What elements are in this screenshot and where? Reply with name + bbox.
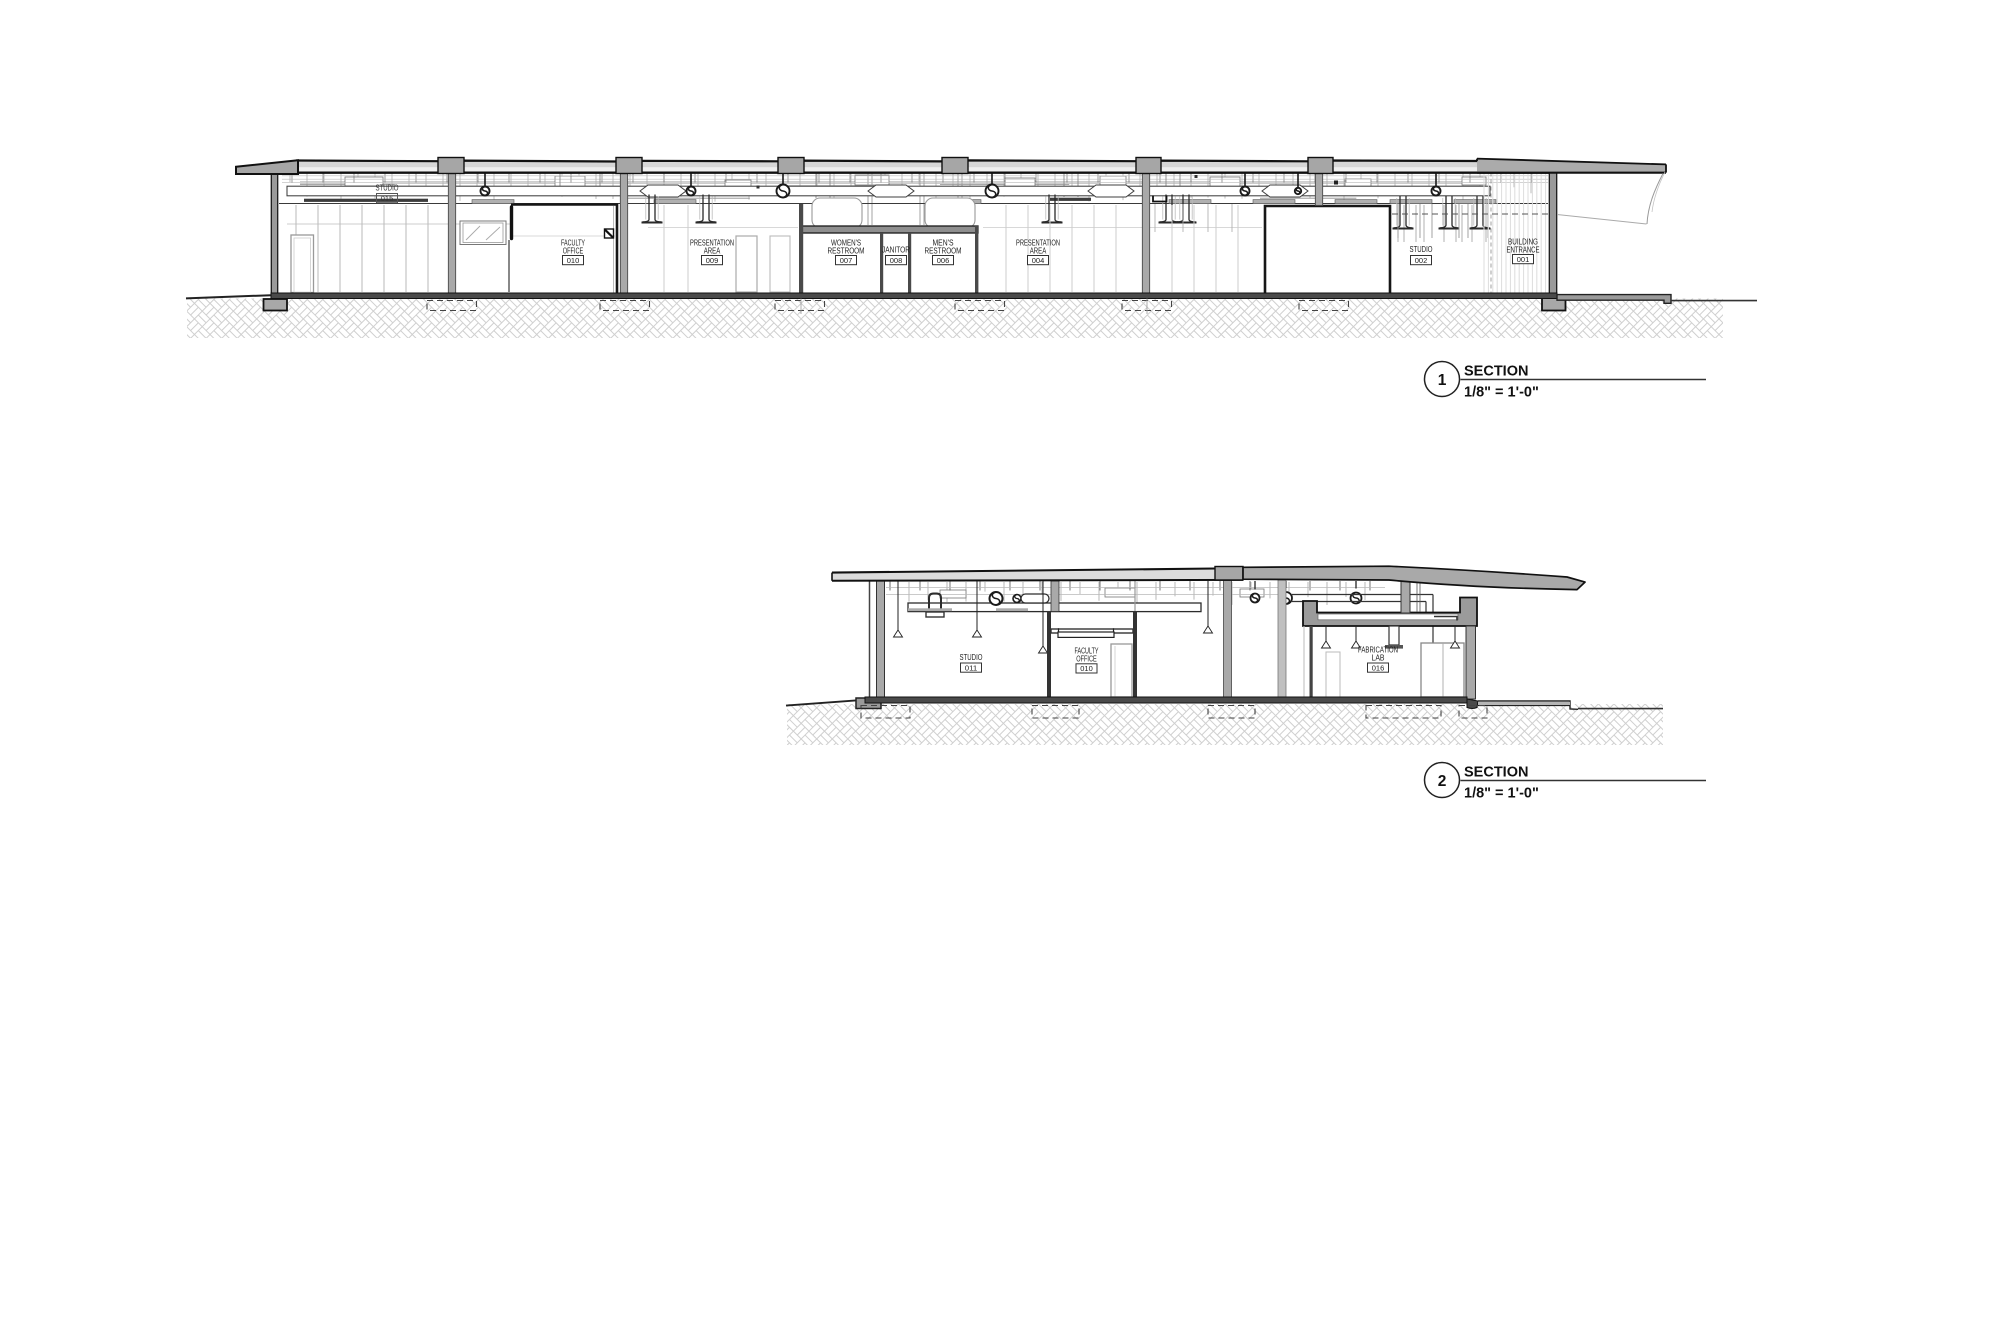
svg-text:016: 016 xyxy=(1372,663,1385,672)
svg-text:011: 011 xyxy=(965,663,978,672)
svg-text:1: 1 xyxy=(1438,372,1447,389)
svg-text:007: 007 xyxy=(840,256,853,265)
svg-text:015: 015 xyxy=(381,194,394,203)
svg-text:JANITOR: JANITOR xyxy=(882,246,910,255)
svg-text:AREA: AREA xyxy=(704,247,721,256)
svg-text:010: 010 xyxy=(567,256,580,265)
svg-text:STUDIO: STUDIO xyxy=(960,653,983,662)
svg-text:1/8" = 1'-0": 1/8" = 1'-0" xyxy=(1464,385,1539,401)
svg-text:2: 2 xyxy=(1438,773,1447,790)
svg-text:LAB: LAB xyxy=(1372,654,1385,663)
svg-text:009: 009 xyxy=(706,256,719,265)
svg-text:1/8" = 1'-0": 1/8" = 1'-0" xyxy=(1464,786,1539,802)
svg-text:RESTROOM: RESTROOM xyxy=(828,247,865,256)
svg-text:010: 010 xyxy=(1080,664,1093,673)
svg-text:STUDIO: STUDIO xyxy=(1410,245,1433,254)
svg-text:ENTRANCE: ENTRANCE xyxy=(1507,246,1540,255)
svg-text:STUDIO: STUDIO xyxy=(376,184,399,193)
svg-text:OFFICE: OFFICE xyxy=(563,247,584,256)
svg-text:001: 001 xyxy=(1517,255,1530,264)
svg-text:AREA: AREA xyxy=(1030,247,1047,256)
svg-text:OFFICE: OFFICE xyxy=(1076,655,1097,664)
svg-text:008: 008 xyxy=(890,256,903,265)
svg-text:006: 006 xyxy=(937,256,950,265)
svg-text:002: 002 xyxy=(1415,256,1428,265)
svg-text:SECTION: SECTION xyxy=(1464,765,1528,781)
svg-text:004: 004 xyxy=(1032,256,1045,265)
svg-text:RESTROOM: RESTROOM xyxy=(925,247,962,256)
svg-text:SECTION: SECTION xyxy=(1464,364,1528,380)
